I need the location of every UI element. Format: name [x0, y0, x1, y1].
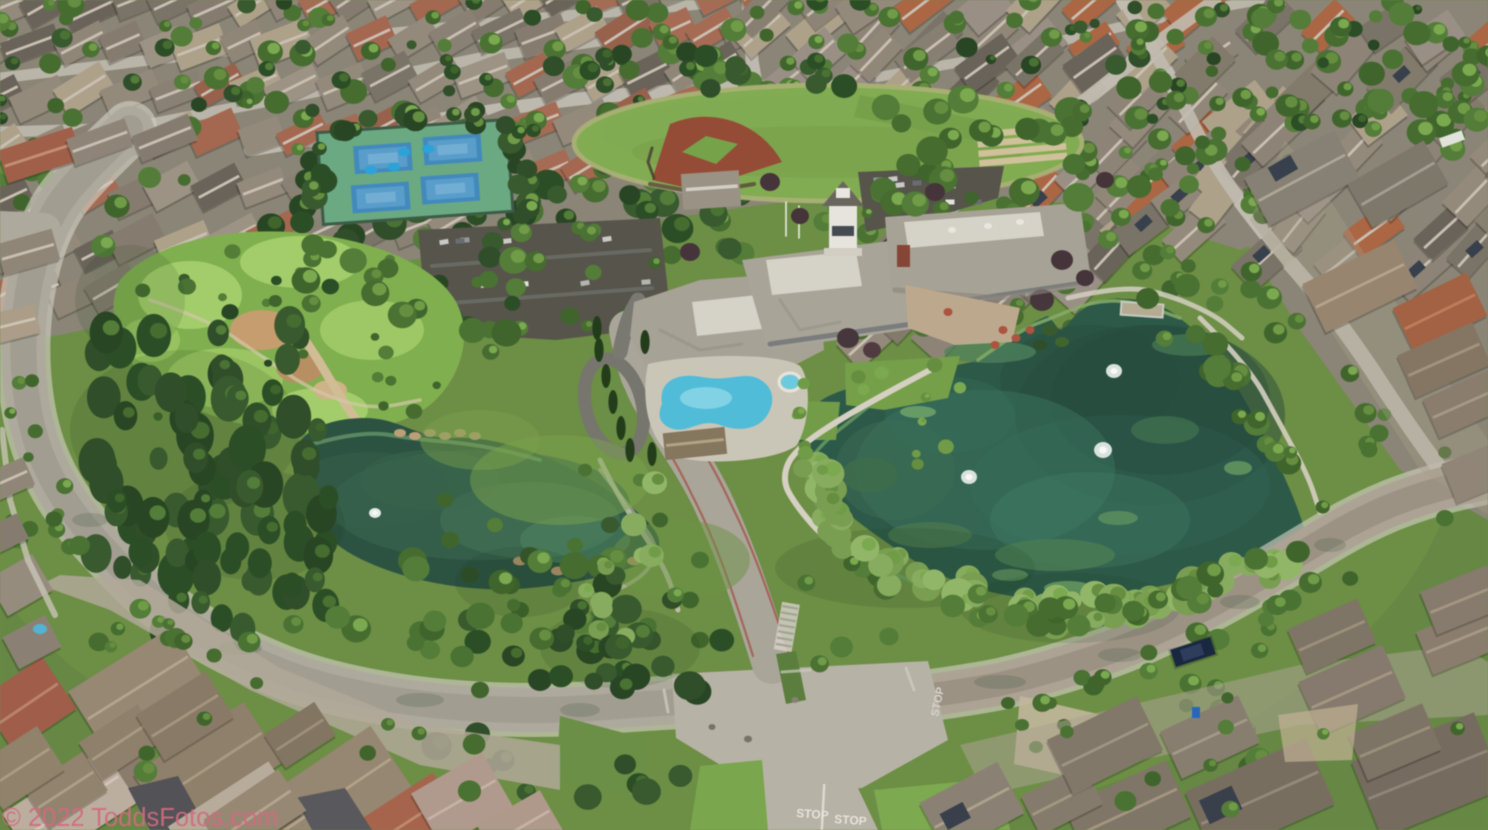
svg-text:STOP: STOP: [834, 812, 867, 828]
svg-text:© 2022 ToddsFotos.com: © 2022 ToddsFotos.com: [2, 804, 278, 830]
svg-text:STOP: STOP: [796, 806, 829, 822]
